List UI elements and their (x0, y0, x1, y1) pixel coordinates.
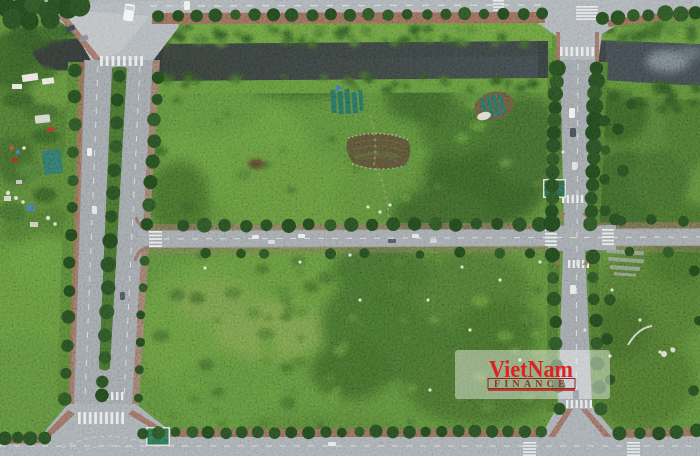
svg-text:FINANCE: FINANCE (494, 379, 569, 390)
